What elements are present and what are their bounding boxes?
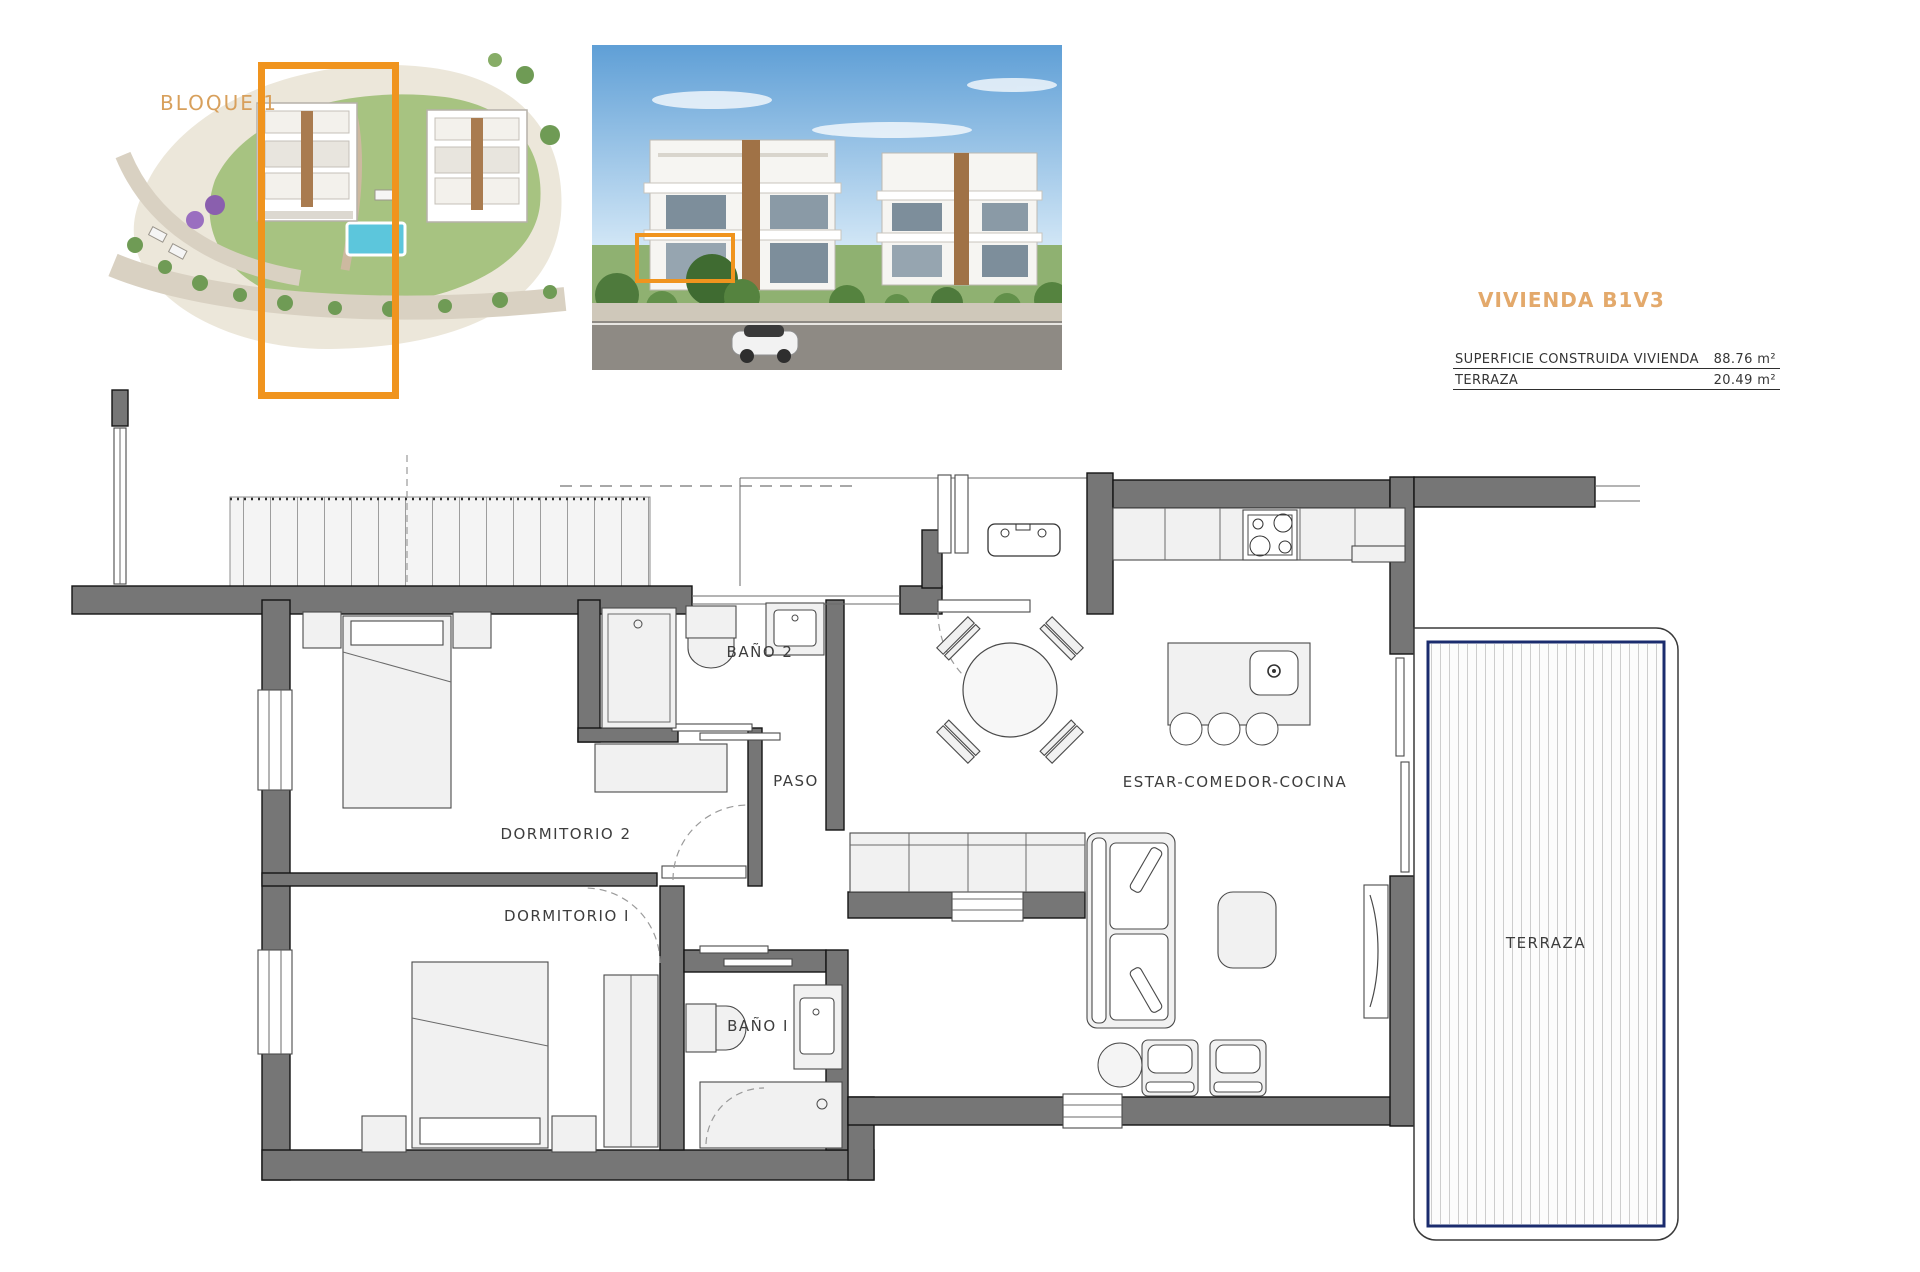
room-label-bano2: BAÑO 2 [727,642,794,661]
shower-1 [700,1082,842,1148]
hall-closet [850,833,1085,892]
tall-cabinet [955,475,968,553]
room-label-estar: ESTAR-COMEDOR-COCINA [1123,773,1347,791]
bath2-sliding-door [672,724,752,731]
bath2-fixtures [602,603,824,728]
bath1-fixtures [686,985,842,1148]
bed-1-headboard [420,1118,540,1144]
sofa-back [1092,838,1106,1023]
toilet-2-tank [686,606,736,638]
room-label-terraza: TERRAZA [1505,934,1586,952]
brochure-page: BLOQUE 1 [0,0,1920,1272]
room-label-bano1: BAÑO I [727,1016,789,1035]
utility-area [938,475,1060,556]
bath2-sliding-door-2 [700,733,780,740]
shower-2 [602,608,676,728]
nightstand [362,1116,406,1152]
room-label-dormitorio2: DORMITORIO 2 [500,825,631,843]
nightstand [552,1116,596,1152]
tall-cabinet [938,475,951,553]
stool [1208,713,1240,745]
living-furniture [1087,833,1388,1096]
floor-plan: BAÑO 2 PASO DORMITORIO 2 DORMITORIO I BA… [0,0,1920,1272]
coffee-table [1218,892,1276,968]
dresser [595,744,727,792]
tv-unit [1364,885,1388,1018]
pergola-canopy [230,455,856,586]
stool [1246,713,1278,745]
bedroom1-furniture [362,962,658,1152]
armchair [1210,1040,1266,1096]
bath1-sliding-door-2 [724,959,792,966]
stove [1243,510,1297,560]
stool [1170,713,1202,745]
kitchen-counter [1113,508,1405,562]
nightstand [453,612,491,648]
armchair [1142,1040,1198,1096]
sink-1-basin [800,998,834,1054]
room-label-dormitorio1: DORMITORIO I [504,907,630,925]
bath1-sliding-door [700,946,768,953]
toilet-1-tank [686,1004,716,1052]
dining-table [963,643,1057,737]
dining-set [937,617,1083,763]
appliance [988,524,1060,556]
nightstand [303,612,341,648]
bedroom1-door-arc [585,888,660,963]
side-table [1098,1043,1142,1087]
entry-door-leaf [938,600,1030,612]
bed-2-headboard [351,621,443,645]
kitchen-island [1168,643,1310,745]
room-label-paso: PASO [773,772,819,790]
